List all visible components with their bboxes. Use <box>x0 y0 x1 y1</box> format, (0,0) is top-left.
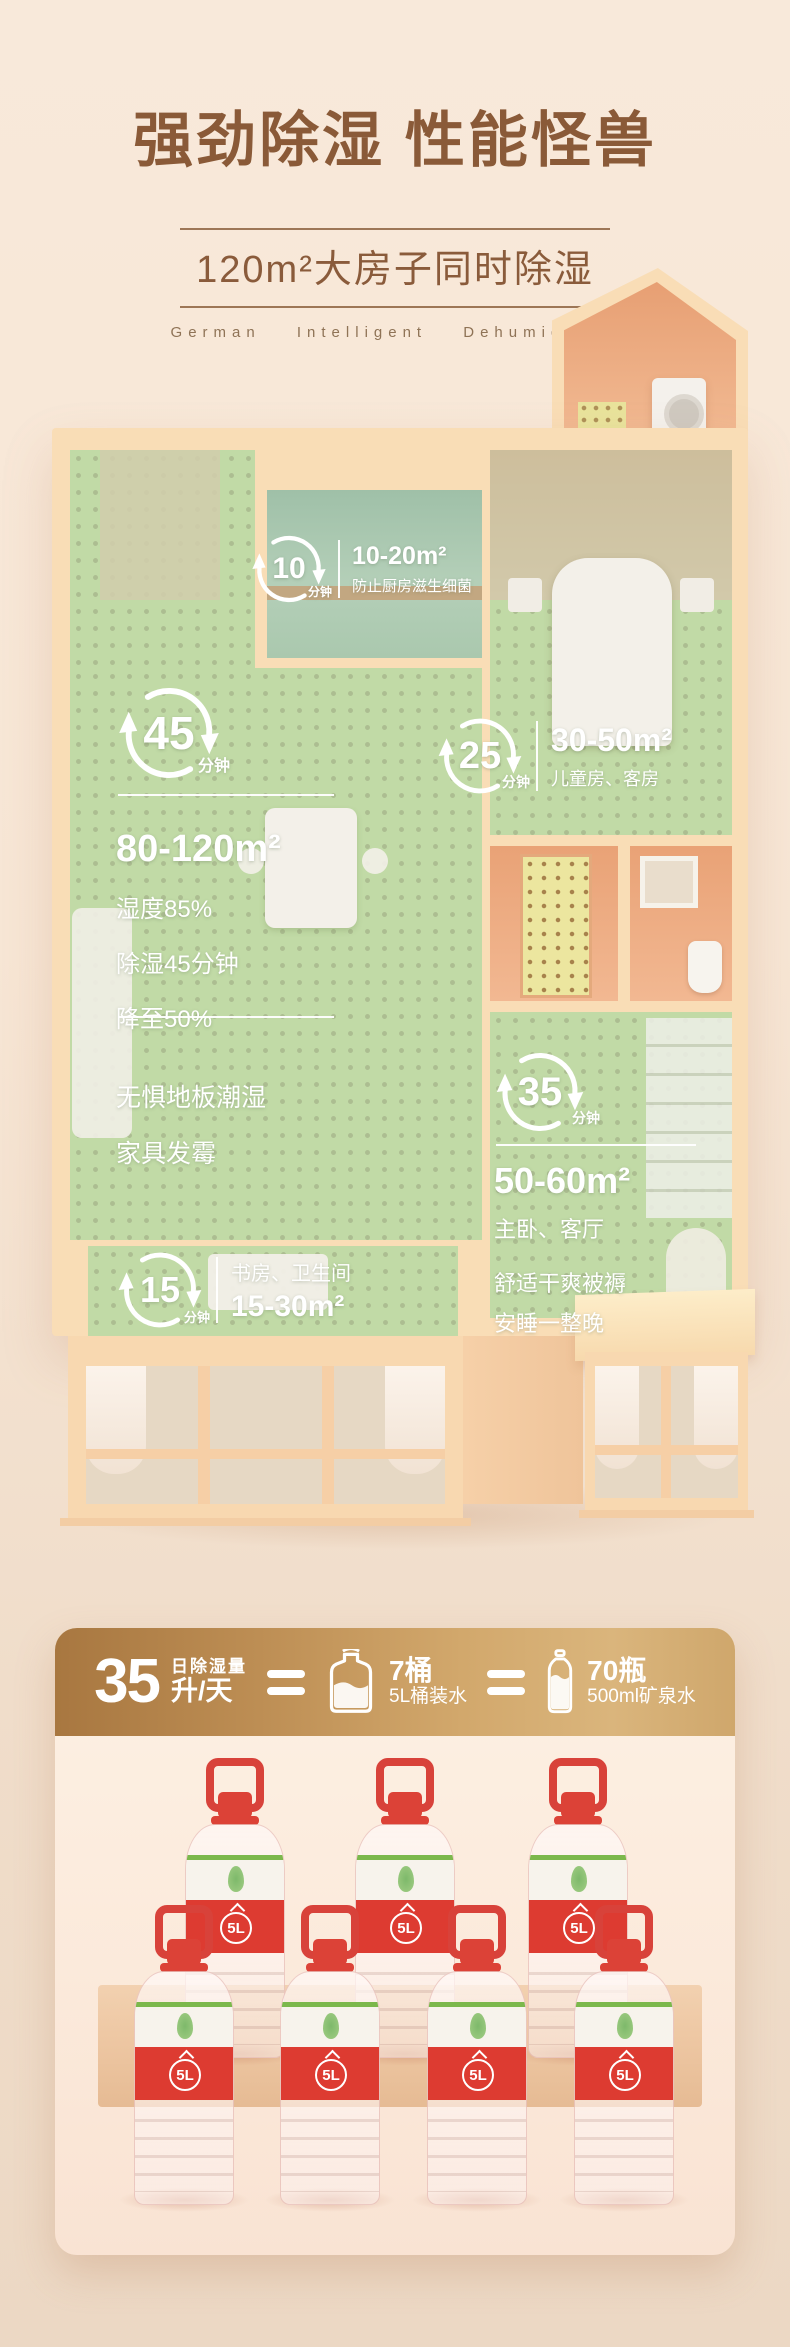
water-bottle-icon <box>545 1649 575 1715</box>
jug-label-white <box>356 1860 454 1900</box>
window-mullion <box>661 1366 671 1498</box>
jug-cap <box>313 1939 347 1965</box>
leaf-mark <box>323 2013 339 2039</box>
chair <box>362 848 388 874</box>
divider-bottom <box>180 306 610 308</box>
equivalence-header: 35 日除湿量 升/天 7桶 5L桶装水 <box>55 1628 735 1736</box>
volume-badge: 5L <box>169 2059 201 2091</box>
jug-label-red: 5L <box>575 2047 673 2100</box>
detail-line: 家具发霉 <box>116 1134 346 1170</box>
facade-pillar <box>463 1336 583 1504</box>
jug-label-white <box>281 2007 379 2047</box>
divider-top <box>180 228 610 230</box>
rooms-desc: 书房、卫生间 <box>231 1257 351 1286</box>
jug-label-red: 5L <box>428 2047 526 2100</box>
facade-base <box>579 1510 754 1518</box>
volume-badge: 5L <box>609 2059 641 2091</box>
jug-label-white <box>186 1860 284 1900</box>
window-mullion <box>86 1449 445 1459</box>
jug-cap <box>460 1939 494 1965</box>
jug-cap <box>607 1939 641 1965</box>
annotation-divider <box>496 1144 696 1146</box>
water-jug-icon <box>325 1649 377 1715</box>
jug-label-white <box>428 2007 526 2047</box>
annotation-study: 15 分钟 书房、卫生间 15-30m² <box>116 1246 351 1334</box>
room-utility-veil <box>70 450 255 676</box>
water-jug-5l: 5L <box>572 1905 676 2205</box>
daily-capacity-label: 日除湿量 <box>171 1657 247 1677</box>
annotation-kids: 25 分钟 30-50m² 儿童房、客房 <box>436 712 672 800</box>
minutes-unit: 分钟 <box>308 583 332 600</box>
laundry-inner-wall <box>564 282 736 443</box>
leaf-mark <box>398 1866 414 1892</box>
leaf-mark <box>617 2013 633 2039</box>
area-desc: 防止厨房滋生细菌 <box>352 575 472 596</box>
jug-cap <box>388 1792 422 1818</box>
leaf-mark <box>177 2013 193 2039</box>
water-jug-5l: 5L <box>425 1905 529 2205</box>
area-value: 80-120m² <box>116 828 346 871</box>
wall-frame <box>640 856 698 908</box>
jug-body: 5L <box>427 1971 527 2205</box>
area-value: 10-20m² <box>352 542 472 571</box>
water-jug-5l: 5L <box>132 1905 236 2205</box>
jug-desc: 5L桶装水 <box>389 1686 467 1708</box>
bottle-count: 70瓶 <box>587 1656 696 1687</box>
water-jug-5l: 5L <box>278 1905 382 2205</box>
shower-tile-floor <box>520 854 592 998</box>
promo-page: 强劲除湿 性能怪兽 120m²大房子同时除湿 German Intelligen… <box>0 0 790 2347</box>
area-value: 30-50m² <box>551 722 672 759</box>
annotation-kitchen: 10 分钟 10-20m² 防止厨房滋生细菌 <box>250 530 472 608</box>
jug-label-white <box>135 2007 233 2047</box>
detail-line: 舒适干爽被褥 <box>494 1266 704 1298</box>
equals-icon <box>487 1670 525 1695</box>
area-value: 50-60m² <box>494 1160 704 1202</box>
cycle-timer-icon: 15 分钟 <box>116 1246 204 1334</box>
minutes-unit: 分钟 <box>198 752 230 776</box>
jug-count: 7桶 <box>389 1656 467 1687</box>
leaf-mark <box>571 1866 587 1892</box>
facade-left-bay <box>68 1336 463 1518</box>
detail-line: 安睡一整晚 <box>494 1306 704 1338</box>
leaf-mark <box>228 1866 244 1892</box>
room-toilet <box>630 846 732 1001</box>
window-mullion <box>322 1366 334 1504</box>
jug-label-white <box>575 2007 673 2047</box>
annotation-divider <box>118 794 334 796</box>
detail-line: 无惧地板潮湿 <box>116 1078 346 1114</box>
annotation-master: 35 分钟 50-60m² 主卧、客厅 舒适干爽被褥 安睡一整晚 <box>494 1046 704 1338</box>
cycle-timer-icon: 35 分钟 <box>494 1046 586 1138</box>
cycle-timer-icon: 25 分钟 <box>436 712 524 800</box>
toilet <box>688 941 722 993</box>
jug-body: 5L <box>280 1971 380 2205</box>
laundry-gable <box>552 268 748 443</box>
volume-badge: 5L <box>462 2059 494 2091</box>
equals-icon <box>267 1670 305 1695</box>
page-title: 强劲除湿 性能怪兽 <box>0 92 790 179</box>
jug-body: 5L <box>574 1971 674 2205</box>
minutes-unit: 分钟 <box>184 1307 210 1326</box>
jug-cap <box>561 1792 595 1818</box>
jug-body: 5L <box>134 1971 234 2205</box>
window-left <box>86 1366 445 1504</box>
detail-line: 湿度85% <box>116 889 346 924</box>
daily-capacity-value: 35 <box>94 1654 159 1710</box>
window-right <box>595 1366 738 1498</box>
nightstand <box>508 578 542 612</box>
cycle-timer-icon: 10 分钟 <box>250 530 328 608</box>
cycle-timer-icon: 45 分钟 <box>116 680 222 786</box>
volume-badge: 5L <box>390 1912 422 1944</box>
minutes-unit: 分钟 <box>502 772 530 792</box>
window-mullion <box>595 1445 738 1455</box>
facade-base <box>60 1518 471 1526</box>
area-desc: 主卧、客厅 <box>494 1212 704 1244</box>
annotation-divider <box>118 1016 334 1018</box>
facade-right-bay <box>585 1352 748 1510</box>
jug-cap <box>218 1792 252 1818</box>
jug-label-red: 5L <box>135 2047 233 2100</box>
volume-badge: 5L <box>315 2059 347 2091</box>
window-mullion <box>198 1366 210 1504</box>
detail-line: 除湿45分钟 <box>116 944 346 979</box>
jug-cap <box>167 1939 201 1965</box>
area-value: 15-30m² <box>231 1290 351 1324</box>
bottle-desc: 500ml矿泉水 <box>587 1686 696 1708</box>
minutes-unit: 分钟 <box>572 1108 600 1128</box>
leaf-mark <box>470 2013 486 2039</box>
jug-label-red: 5L <box>281 2047 379 2100</box>
jug-label-white <box>529 1860 627 1900</box>
daily-capacity-unit: 升/天 <box>171 1676 247 1707</box>
annotation-living: 45 分钟 80-120m² 湿度85% 除湿45分钟 降至50% 无惧地板潮湿… <box>116 680 346 1170</box>
nightstand <box>680 578 714 612</box>
area-desc: 儿童房、客房 <box>551 765 672 791</box>
room-shower <box>490 846 618 1001</box>
